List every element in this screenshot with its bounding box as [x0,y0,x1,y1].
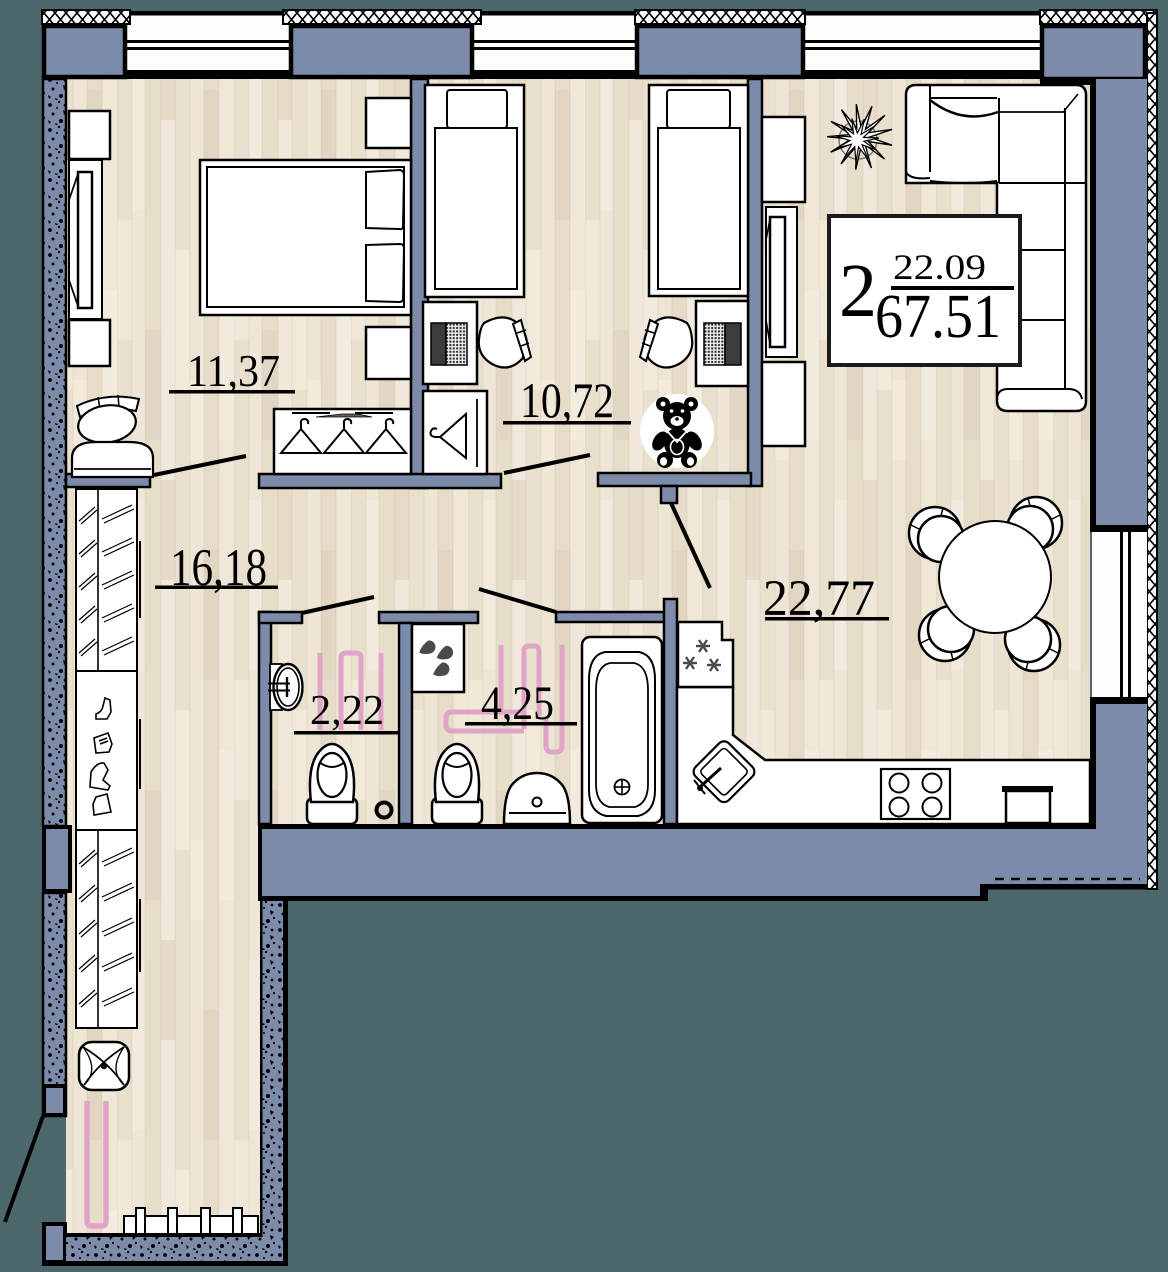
svg-text:2: 2 [839,249,877,333]
svg-text:67.51: 67.51 [875,283,1001,351]
svg-text:2,22: 2,22 [310,688,384,734]
svg-text:10,72: 10,72 [520,372,614,428]
svg-text:22.09: 22.09 [893,247,986,287]
svg-text:11,37: 11,37 [187,346,280,396]
